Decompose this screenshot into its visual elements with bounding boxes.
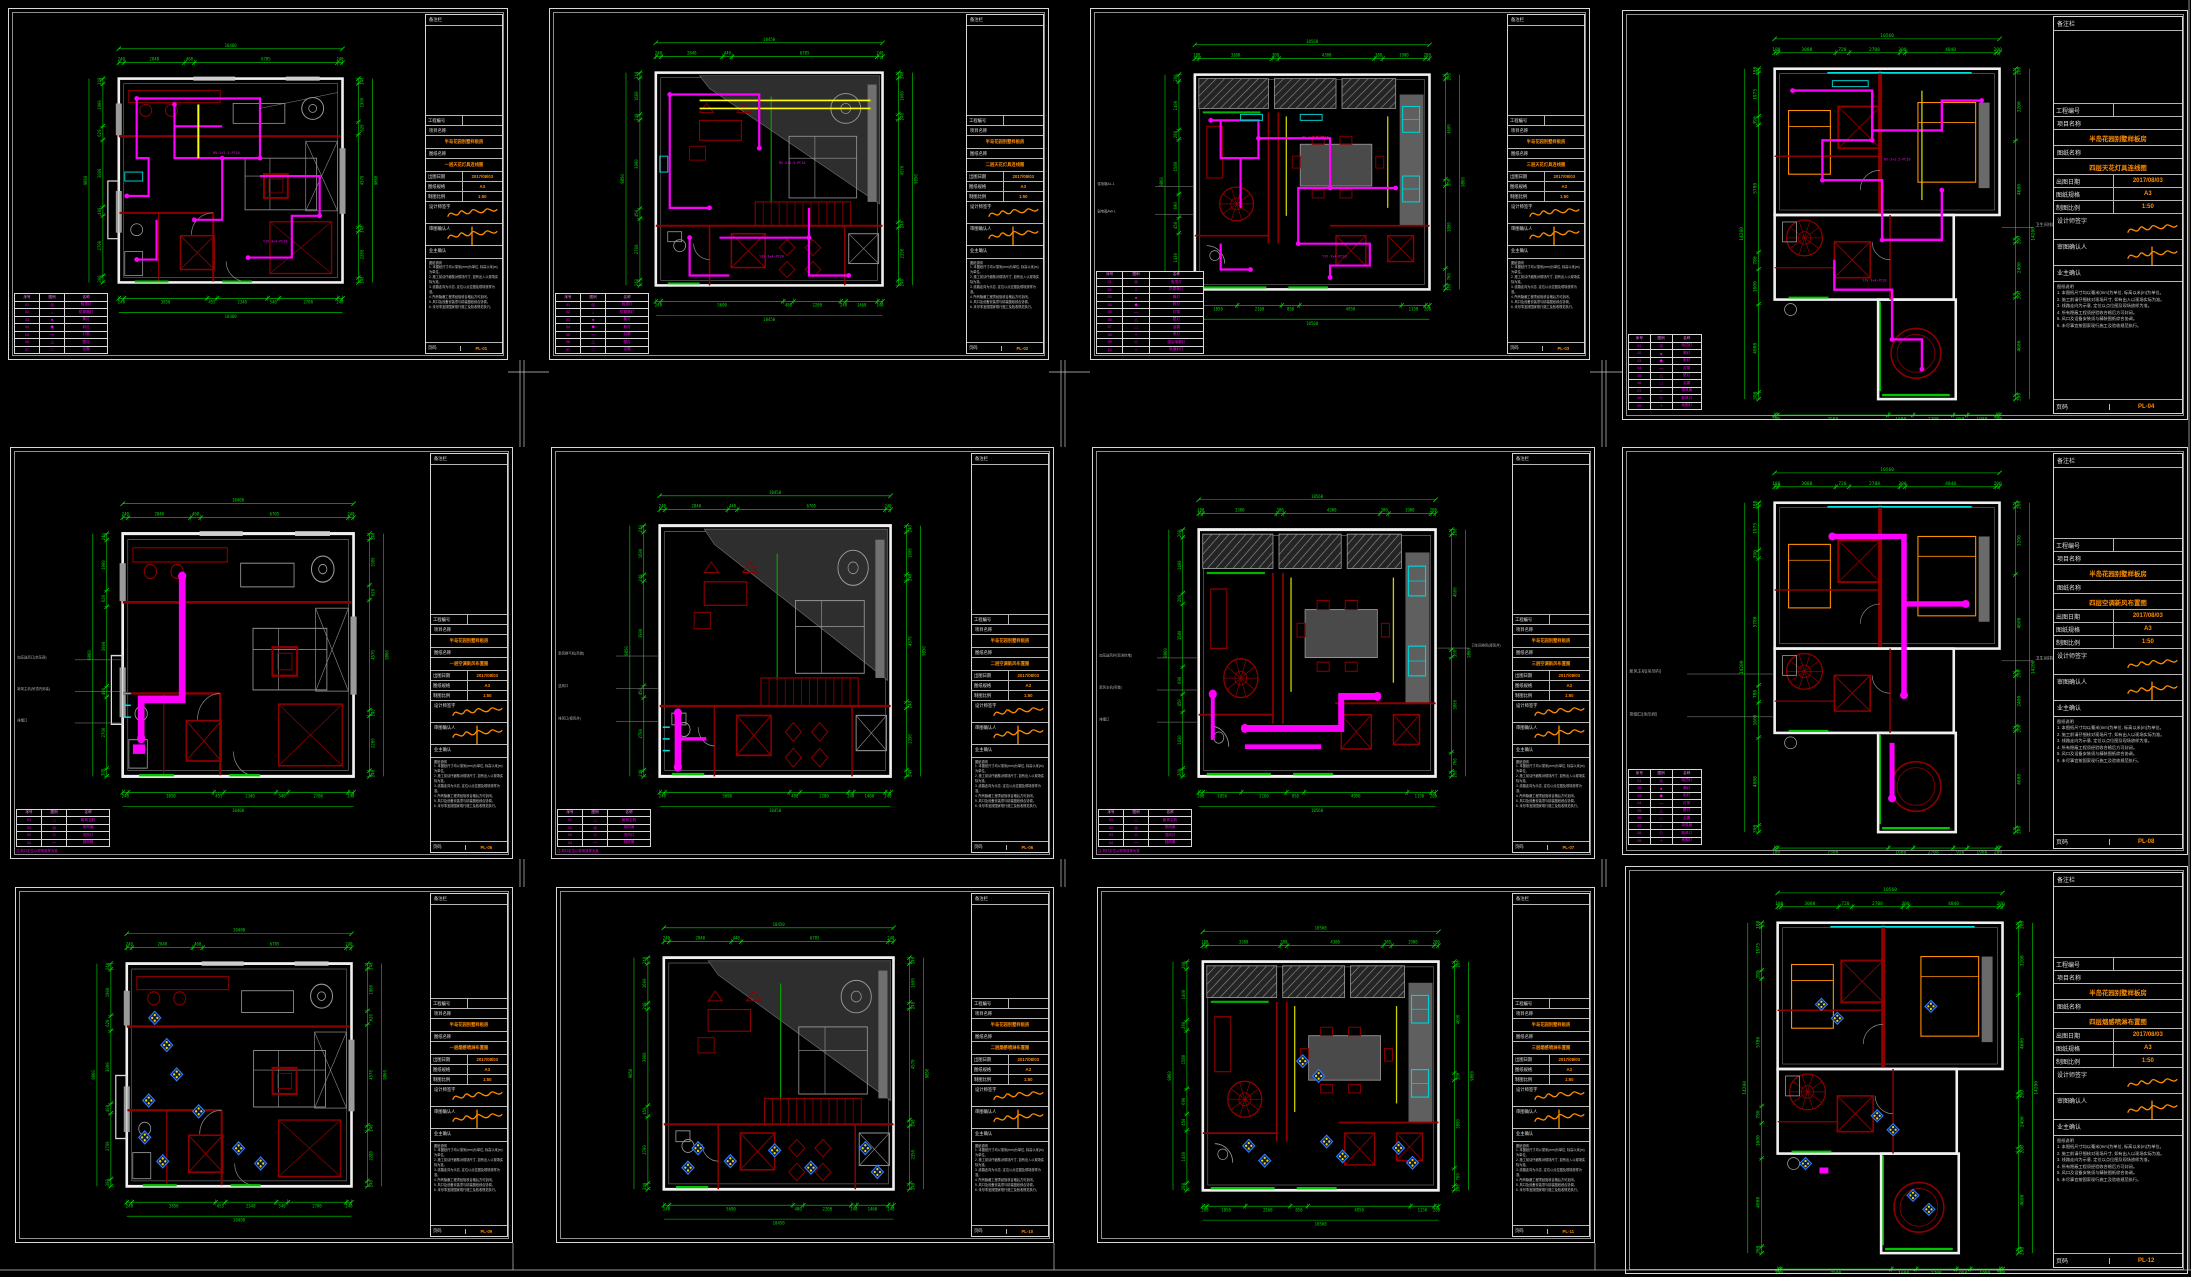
svg-text:300: 300 [1901,901,1909,907]
spec-row: 图纸规格A3 [1508,182,1584,192]
svg-text:200: 200 [2019,1090,2025,1098]
drawing-name-value: 一层空调新风布置图 [431,658,507,671]
svg-text:300: 300 [1280,940,1288,945]
page-row: 页码PL-08 [2054,834,2182,848]
note-line: 3. 线路走向为示意, 定位以点位图及现场放样为准。 [975,784,1045,794]
drawing-name-label: 图纸名称 [1508,149,1584,159]
svg-text:720: 720 [1841,901,1849,907]
drawing-notes: 图纸说明1. 本图纸尺寸均以毫米(mm)为单位, 标高以米(m)为单位。2. 施… [2054,717,2182,835]
svg-text:2280: 2280 [359,249,364,259]
legend-cell: ◇ [1650,395,1672,403]
project-number-value [1003,116,1043,125]
date-value: 2017/08/03 [1549,1055,1589,1064]
note-line: 6. 未尽事宜按国家现行施工及验收规范执行。 [970,305,1040,310]
svg-text:240: 240 [97,77,102,85]
svg-text:9860: 9860 [1163,648,1168,658]
project-number-label: 工程编号 [2054,960,2113,969]
legend-header-cell: 序号 [1629,335,1651,343]
svg-text:620: 620 [370,588,375,596]
legend-cell: ● [581,316,606,324]
checker-signature-cell: 审图确认人 [967,224,1043,246]
legend-table: 序号图例名称01◎吸顶灯02●筒灯03◆射灯04—灯带05△壁灯06□浴霸07○… [1628,769,1702,845]
legend-cell: ◇ [42,832,67,840]
svg-text:2280: 2280 [370,738,375,748]
designer-signature-cell: 设计师签字 [2054,1068,2182,1094]
scale-row: 制图比例1:50 [2054,636,2182,649]
svg-text:240: 240 [910,1119,915,1127]
date-row: 出图日期2017/08/03 [431,1055,507,1065]
owner-confirm-cell: 业主确认 [2054,701,2182,717]
drawing-name-value: 四层天花灯具连线图 [2054,159,2182,175]
legend-cell: 02 [1099,824,1124,832]
checker-signature-cell: 审图确认人 [2054,240,2182,266]
svg-text:200: 200 [1455,960,1460,968]
titleblock-spacer [2054,468,2182,539]
svg-text:455: 455 [208,300,216,305]
checker-signature-cell: 审图确认人 [1513,1107,1589,1129]
svg-text:540: 540 [278,1204,286,1209]
spec-value: A3 [2113,623,2182,635]
titleblock-header: 备注栏 [2054,873,2182,887]
svg-text:200: 200 [2016,291,2022,299]
titleblock-header: 备注栏 [972,454,1048,465]
svg-text:14200: 14200 [2033,1081,2039,1095]
svg-text:3850: 3850 [169,1204,179,1209]
title-block: 备注栏工程编号项目名称半岛花园别墅样板房图纸名称二层天花灯具连线图出图日期201… [966,14,1044,354]
sheet-PL-04[interactable]: BV-2×2.5-PC16YJV-3×4-PC20180308872027083… [1622,10,2188,420]
titleblock-header: 备注栏 [1513,454,1589,465]
legend-table-wrap: 序号图例名称01◎吸顶灯02●筒灯03◆射灯04—灯带05△壁灯06□浴霸07○… [1628,769,1702,845]
scale-label: 制图比例 [2054,638,2113,647]
cad-model-space[interactable]: BV-2×2.5-PC16YJV-3×4-PC20240284046067052… [0,0,2191,1277]
designer-signature-cell: 设计师签字 [972,1085,1048,1107]
legend-cell: ● [1123,294,1149,302]
svg-text:300: 300 [1753,391,1759,399]
svg-text:2840: 2840 [149,57,159,62]
svg-text:4570: 4570 [910,1059,915,1069]
svg-text:4300: 4300 [1327,508,1337,513]
svg-text:加压送风井(现浇封堵): 加压送风井(现浇封堵) [1099,652,1132,657]
legend-cell: — [40,331,65,339]
legend-cell: 05 [1097,309,1123,317]
legend-cell: 06 [1097,316,1123,324]
sheet-PL-02[interactable]: BV-2×2.5-PC16YJV-3×4-PC20240284044067052… [549,8,1049,360]
sheet-PL-11[interactable]: 1803300300430038019002001056020018502160… [1097,887,1595,1243]
scale-value: 1:50 [1544,192,1584,201]
legend-cell: 筒灯 [1672,350,1701,358]
svg-text:240: 240 [638,525,643,533]
sheet-PL-09[interactable]: 2402840460670524010400240385045523405402… [15,887,513,1243]
svg-text:240: 240 [336,57,344,62]
drawing-notes: 图纸说明1. 本图纸尺寸均以毫米(mm)为单位, 标高以米(m)为单位。2. 施… [2054,1136,2182,1254]
date-row: 出图日期2017/08/03 [1513,1055,1589,1065]
svg-text:2700: 2700 [105,1141,110,1151]
legend-cell: 灯带 [1149,309,1203,317]
svg-text:1980: 1980 [1976,849,1987,854]
title-block: 备注栏工程编号项目名称半岛花园别墅样板房图纸名称三层空调新风布置图出图日期201… [1512,453,1590,853]
scale-label: 制图比例 [431,1077,467,1083]
svg-text:240: 240 [370,769,375,777]
legend-cell: ◎ [1123,279,1149,287]
legend-cell: □ [40,346,65,354]
svg-text:450: 450 [642,1107,647,1115]
spec-label: 图纸规格 [972,683,1008,689]
legend-cell: 筒灯 [65,316,108,324]
titleblock-header: 备注栏 [972,894,1048,905]
page-label: 页码 [431,1228,465,1234]
svg-text:10450: 10450 [773,922,786,927]
project-number-value [467,999,507,1008]
svg-text:200: 200 [1997,1270,2005,1273]
drawing-name-label: 图纸名称 [2054,146,2182,159]
legend-cell: □ [1123,324,1149,332]
svg-text:3300: 3300 [1239,940,1249,945]
drawing-name-value: 一层烟感喷淋布置图 [431,1042,507,1055]
svg-text:1980: 1980 [1976,416,1987,419]
svg-text:300: 300 [1455,1072,1460,1080]
legend-cell: 05 [1629,807,1651,815]
project-number-row: 工程编号 [431,999,507,1009]
scale-row: 制图比例1:50 [426,192,502,202]
project-name-label: 项目名称 [431,1009,507,1019]
project-number-row: 工程编号 [2054,958,2182,971]
scale-label: 制图比例 [972,693,1008,699]
legend-cell: 05 [15,331,40,339]
legend-table-wrap: 序号图例名称01□新风主机02◎排风扇03◇送风口04—回风管注:风口定位以现场… [1098,809,1192,854]
titleblock-header: 备注栏 [2054,454,2182,468]
scale-value: 1:50 [467,1075,507,1084]
svg-text:1400: 1400 [1181,989,1186,999]
svg-text:180: 180 [1772,481,1780,487]
legend-header-cell: 名称 [65,294,108,302]
spec-label: 图纸规格 [431,683,467,689]
legend-cell: 防雾筒灯 [1149,286,1203,294]
svg-text:200: 200 [1446,283,1451,291]
svg-text:240: 240 [899,112,904,120]
date-value: 2017/08/03 [462,172,502,181]
svg-text:620: 620 [359,124,364,132]
svg-text:3800: 3800 [1452,699,1457,709]
svg-text:240: 240 [122,512,130,517]
checker-signature-cell: 审图确认人 [972,723,1048,745]
designer-signature-cell: 设计师签字 [967,202,1043,224]
owner-confirm-cell: 业主确认 [431,745,507,758]
titleblock-spacer [972,465,1048,615]
project-name-value: 半岛花园别墅样板房 [972,1019,1048,1032]
project-name-value: 半岛花园别墅样板房 [426,136,502,149]
svg-text:200: 200 [1433,940,1441,945]
svg-text:10400: 10400 [233,1218,246,1223]
owner-confirm-cell: 业主确认 [426,246,502,259]
date-label: 出图日期 [2054,612,2113,621]
svg-text:3088: 3088 [1801,47,1812,53]
scale-row: 制图比例1:50 [1508,192,1584,202]
spec-value: A3 [1544,182,1584,191]
svg-text:2400: 2400 [2019,1116,2025,1127]
legend-cell: 02 [1629,350,1651,358]
legend-cell: 09 [1097,339,1123,347]
date-row: 出图日期2017/08/03 [2054,175,2182,188]
designer-signature-cell: 设计师签字 [2054,214,2182,240]
legend-cell: 筒灯 [606,316,649,324]
legend-cell: 排风扇 [1149,824,1192,832]
legend-cell: 07 [1097,324,1123,332]
svg-text:200: 200 [2016,724,2022,732]
legend-header-cell: 图例 [1123,271,1149,279]
legend-table: 序号图例名称01□新风主机02◎排风扇03◇送风口04—回风管 [557,809,651,848]
designer-signature-icon [449,702,505,722]
svg-text:300: 300 [1753,824,1759,832]
legend-cell: □ [1650,815,1672,823]
svg-text:4950: 4950 [1346,307,1356,312]
sheet-PL-10[interactable]: 2402840440670524010450240569048022002401… [556,887,1054,1243]
project-number-row: 工程编号 [431,615,507,625]
svg-text:5690: 5690 [726,1207,736,1212]
legend-cell: 射灯 [1672,792,1701,800]
svg-text:200: 200 [2016,236,2022,244]
project-name-label: 项目名称 [972,1009,1048,1019]
svg-text:9860: 9860 [1460,177,1465,187]
sheet-PL-05[interactable]: 2402840460670524010400240385045523405402… [10,447,513,859]
scale-value: 1:50 [1003,192,1043,201]
svg-text:240: 240 [887,1207,895,1212]
svg-text:2350: 2350 [910,1149,915,1159]
legend-cell: 04 [1099,839,1124,847]
svg-text:200: 200 [1197,794,1205,799]
svg-text:780: 780 [1753,256,1759,264]
svg-text:1900: 1900 [1405,508,1415,513]
legend-cell: 04 [1097,301,1123,309]
legend-cell: 感应地脚灯 [1149,339,1203,347]
date-label: 出图日期 [2054,177,2113,186]
svg-text:4950: 4950 [1354,1208,1364,1213]
legend-cell: 送风口 [1149,832,1192,840]
project-name-label: 项目名称 [972,625,1048,635]
svg-text:240: 240 [887,936,895,941]
svg-text:180: 180 [1772,47,1780,53]
svg-text:200: 200 [1181,1182,1186,1190]
titleblock-spacer [431,905,507,999]
svg-text:240: 240 [655,51,663,56]
project-name-value: 半岛花园别墅样板房 [431,1019,507,1032]
designer-signature-icon [444,203,500,223]
sheet-PL-08[interactable]: 1803088720270830048402001056018075081680… [1622,447,2188,855]
svg-text:200: 200 [1173,74,1178,82]
svg-text:3900: 3900 [638,628,643,638]
legend-cell: 06 [556,339,581,347]
svg-text:240: 240 [638,769,643,777]
svg-text:卫生间排风(接风井): 卫生间排风(接风井) [1471,643,1500,648]
drawing-name-value: 三层空调新风布置图 [1513,658,1589,671]
svg-text:新风主机(吊装): 新风主机(吊装) [1099,685,1122,690]
legend-cell: 排风扇 [1672,822,1701,830]
svg-text:3800: 3800 [1455,1119,1460,1129]
page-row: 页码PL-10 [972,1225,1048,1236]
drawing-name-value: 四层空调新风布置图 [2054,594,2182,610]
legend-table: 序号图例名称01□新风主机02◎排风扇03◇送风口04—回风管 [16,809,110,848]
spec-label: 图纸规格 [1508,184,1544,190]
spec-row: 图纸规格A3 [1513,681,1589,691]
svg-text:4950: 4950 [1351,794,1361,799]
legend-cell: ● [40,316,65,324]
page-code: PL-03 [1542,346,1584,351]
titleblock-header: 备注栏 [2054,17,2182,31]
drawing-notes: 图纸说明1. 本图纸尺寸均以毫米(mm)为单位, 标高以米(m)为单位。2. 施… [1508,259,1584,343]
sheet-PL-06[interactable]: 2402840440670524010450240569048022002401… [551,447,1054,859]
svg-text:280: 280 [1173,130,1178,138]
checker-signature-icon [2124,245,2180,265]
svg-text:10400: 10400 [225,314,238,319]
legend-cell: 吊灯 [1149,331,1203,339]
project-name-value: 半岛花园别墅样板房 [1513,635,1589,648]
page-label: 页码 [2054,1256,2109,1265]
note-line: 6. 未尽事宜按国家现行施工及验收规范执行。 [434,1188,504,1193]
note-line: 2. 施工前请仔细核对现场尺寸, 如有出入以现场实际为准。 [1511,275,1581,285]
legend-cell: 02 [556,309,581,317]
svg-text:2840: 2840 [695,936,705,941]
svg-text:3200: 3200 [2019,955,2025,966]
legend-header-cell: 图例 [40,294,65,302]
date-label: 出图日期 [972,673,1008,679]
page-row: 页码PL-01 [426,342,502,353]
page-code: PL-05 [465,845,507,850]
scale-label: 制图比例 [972,1077,1008,1083]
sheet-PL-12[interactable]: 1803088720270830048402001056018075081680… [1625,866,2188,1274]
svg-text:10450: 10450 [763,37,776,42]
drawing-notes: 图纸说明1. 本图纸尺寸均以毫米(mm)为单位, 标高以米(m)为单位。2. 施… [972,1142,1048,1226]
designer-signature-cell: 设计师签字 [972,701,1048,723]
svg-text:1430: 1430 [1173,252,1178,262]
project-number-row: 工程编号 [972,999,1048,1009]
svg-text:1900: 1900 [370,557,375,567]
date-value: 2017/08/03 [1008,671,1048,680]
legend-cell: 03 [15,316,40,324]
legend-cell: 01 [1629,342,1651,350]
legend-header-cell: 序号 [15,294,40,302]
drawing-name-label: 图纸名称 [2054,1000,2182,1013]
owner-confirm-cell: 业主确认 [972,745,1048,758]
legend-cell: ◎ [581,301,606,309]
legend-cell: 射灯 [1149,301,1203,309]
legend-cell: 吸顶灯 [1672,342,1701,350]
svg-text:1400: 1400 [1177,560,1182,570]
legend-cell: + [1123,331,1149,339]
note-line: 1. 本图纸尺寸均以毫米(mm)为单位, 标高以米(m)为单位。 [2057,290,2179,297]
drawing-notes: 图纸说明1. 本图纸尺寸均以毫米(mm)为单位, 标高以米(m)为单位。2. 施… [1513,1142,1589,1226]
svg-text:4840: 4840 [1945,47,1956,53]
svg-text:200: 200 [2016,66,2022,74]
date-row: 出图日期2017/08/03 [426,172,502,182]
svg-text:7508: 7508 [1827,416,1838,419]
svg-text:950: 950 [1956,416,1964,419]
titleblock-spacer [2054,887,2182,958]
note-line: 2. 施工前请仔细核对现场尺寸, 如有出入以现场实际为准。 [975,774,1045,784]
svg-text:1850: 1850 [1221,1208,1231,1213]
svg-text:1975: 1975 [1753,523,1759,534]
checker-signature-icon [2124,1099,2180,1119]
svg-text:460: 460 [186,57,194,62]
titleblock-header: 备注栏 [431,454,507,465]
date-label: 出图日期 [967,174,1003,180]
project-name-label: 项目名称 [2054,552,2182,565]
date-label: 出图日期 [431,1057,467,1063]
date-row: 出图日期2017/08/03 [972,671,1048,681]
sheet-PL-07[interactable]: 1803300300430038019002001056020018502160… [1092,447,1595,859]
legend-cell: 壁灯 [1672,807,1701,815]
page-row: 页码PL-02 [967,342,1043,353]
svg-text:BV-2×2.5-PC16: BV-2×2.5-PC16 [213,151,239,155]
svg-text:460: 460 [192,512,200,517]
svg-text:540: 540 [278,794,286,799]
note-line: 6. 未尽事宜按国家现行施工及验收规范执行。 [1516,1188,1586,1193]
project-number-value [1549,615,1589,624]
designer-signature-icon [990,1086,1046,1106]
svg-text:240: 240 [907,701,912,709]
owner-confirm-cell: 业主确认 [972,1129,1048,1142]
svg-text:300: 300 [101,768,106,776]
svg-text:480: 480 [791,794,799,799]
legend-cell: 回风管 [608,839,651,847]
checker-signature-icon [449,1108,505,1128]
svg-text:720: 720 [1838,47,1846,53]
date-label: 出图日期 [1513,673,1549,679]
legend-cell: 浴霸 [606,346,649,354]
svg-text:240: 240 [907,573,912,581]
svg-text:7508: 7508 [1830,1270,1841,1273]
drawing-name-value: 一层天花灯具连线图 [426,159,502,172]
legend-header-cell: 图例 [1650,335,1672,343]
svg-text:10450: 10450 [769,808,782,813]
svg-text:240: 240 [907,769,912,777]
checker-signature-cell: 审图确认人 [431,1107,507,1129]
designer-signature-icon [990,702,1046,722]
svg-text:14200: 14200 [1739,227,1745,241]
svg-text:4600: 4600 [1452,587,1457,597]
sheet-PL-01[interactable]: BV-2×2.5-PC16YJV-3×4-PC20240284046067052… [8,8,508,360]
legend-cell: 壁灯 [1149,316,1203,324]
svg-text:690: 690 [1173,202,1178,210]
legend-cell: 01 [1099,817,1124,825]
svg-text:1600: 1600 [634,91,639,101]
sheet-PL-03[interactable]: BV-2×2.5-PC16YJV-3×4-PC20180330030043003… [1090,8,1590,360]
spec-row: 图纸规格A3 [2054,623,2182,636]
legend-cell: ○ [581,309,606,317]
legend-cell: 02 [1097,286,1123,294]
svg-text:200: 200 [2016,826,2022,834]
legend-cell: 05 [1629,372,1651,380]
svg-text:10560: 10560 [1311,494,1324,499]
svg-text:1580: 1580 [1173,161,1178,171]
svg-text:380: 380 [1375,53,1383,58]
svg-text:440: 440 [733,936,741,941]
project-number-label: 工程编号 [2054,541,2113,550]
svg-text:10560: 10560 [1306,39,1319,44]
page-code: PL-11 [1547,1229,1589,1234]
svg-text:3850: 3850 [161,300,171,305]
checker-signature-icon [2124,680,2180,700]
svg-text:2200: 2200 [812,303,822,308]
svg-text:760: 760 [1452,758,1457,766]
titleblock-spacer [426,26,502,116]
legend-cell: 10 [1097,346,1123,354]
legend-cell: 灯带 [1672,365,1701,373]
drawing-name-value: 四层烟感喷淋布置图 [2054,1013,2182,1029]
checker-signature-icon [1531,1108,1587,1128]
svg-text:9860: 9860 [91,1070,96,1080]
svg-text:1680: 1680 [1895,416,1906,419]
svg-text:4300: 4300 [1330,940,1340,945]
legend-cell: ◎ [40,301,65,309]
